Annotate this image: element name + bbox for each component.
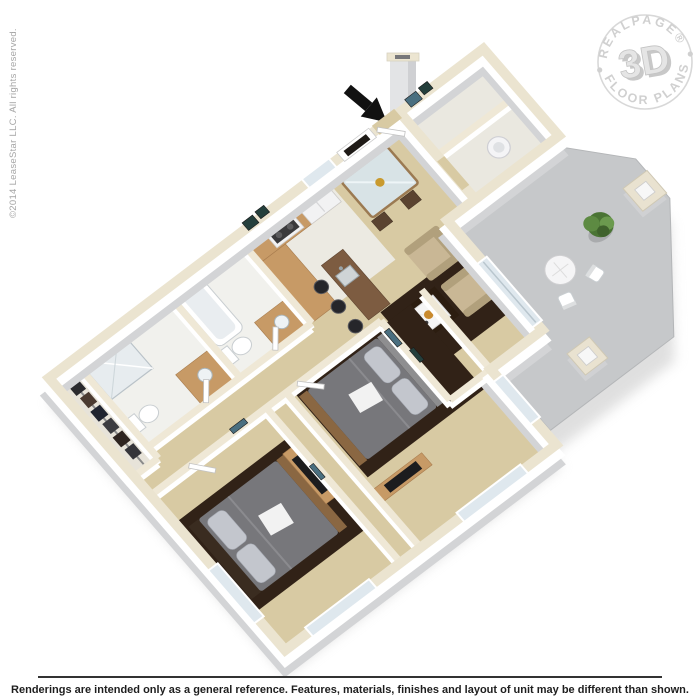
disclaimer-text: Renderings are intended only as a genera…	[11, 684, 689, 696]
bathroom-2-door	[203, 379, 208, 402]
floor-plan-canvas: REALPAGE® FLOOR PLANS 3D 3D ©2014 LeaseS…	[0, 0, 700, 700]
bathroom-1-door	[273, 327, 278, 350]
copyright-text: ©2014 LeaseStar LLC. All rights reserved…	[8, 28, 19, 218]
badge-3d-text: 3D	[615, 36, 673, 88]
